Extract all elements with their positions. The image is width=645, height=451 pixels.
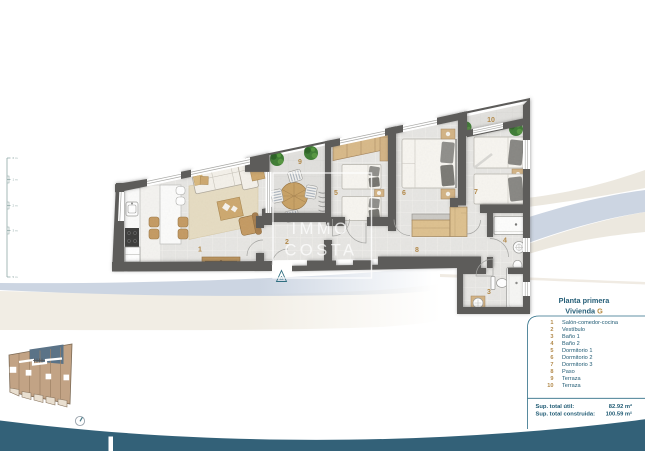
- svg-text:3: 3: [550, 334, 553, 340]
- svg-text:7: 7: [550, 362, 553, 368]
- svg-text:8: 8: [415, 247, 419, 254]
- svg-text:IMMO: IMMO: [292, 220, 351, 238]
- svg-text:5: 5: [334, 190, 338, 197]
- svg-text:9: 9: [550, 376, 553, 382]
- svg-text:5: 5: [550, 348, 553, 354]
- svg-text:4: 4: [503, 238, 507, 245]
- svg-text:Terraza: Terraza: [562, 383, 582, 389]
- svg-text:6 m: 6 m: [13, 156, 19, 160]
- svg-text:Baño 2: Baño 2: [562, 341, 580, 347]
- svg-text:2: 2: [550, 327, 553, 333]
- svg-text:Sup. total útil:: Sup. total útil:: [536, 404, 575, 410]
- svg-text:10: 10: [547, 383, 553, 389]
- svg-text:Dormitorio 1: Dormitorio 1: [562, 348, 592, 354]
- svg-text:1: 1: [550, 320, 553, 326]
- svg-text:9: 9: [298, 159, 302, 166]
- svg-text:82.92 m²: 82.92 m²: [609, 403, 632, 410]
- svg-text:Vestíbulo: Vestíbulo: [562, 327, 585, 333]
- svg-text:Paso: Paso: [562, 369, 575, 375]
- svg-text:5 m: 5 m: [13, 275, 19, 279]
- svg-text:Dormitorio 2: Dormitorio 2: [562, 355, 592, 361]
- svg-text:Vivienda G: Vivienda G: [565, 307, 603, 316]
- svg-text:Salón-comedor-cocina: Salón-comedor-cocina: [562, 320, 619, 326]
- svg-text:Dormitorio 3: Dormitorio 3: [562, 362, 592, 368]
- svg-text:Terraza: Terraza: [562, 376, 582, 382]
- svg-text:3: 3: [487, 289, 491, 296]
- svg-text:8: 8: [550, 369, 553, 375]
- svg-text:Baño 1: Baño 1: [562, 334, 580, 340]
- svg-text:100.59 m²: 100.59 m²: [606, 411, 632, 418]
- svg-text:1: 1: [198, 247, 202, 254]
- svg-text:1 m: 1 m: [13, 178, 19, 182]
- svg-text:2 m: 2 m: [13, 204, 19, 208]
- svg-text:3 m: 3 m: [13, 229, 19, 233]
- svg-text:Sup. total construida:: Sup. total construida:: [536, 412, 596, 418]
- svg-text:6: 6: [402, 190, 406, 197]
- svg-text:6: 6: [550, 355, 553, 361]
- svg-text:7: 7: [474, 189, 478, 196]
- svg-text:Planta primera: Planta primera: [559, 296, 611, 305]
- svg-text:10: 10: [487, 117, 495, 124]
- svg-text:COSTA: COSTA: [284, 242, 357, 260]
